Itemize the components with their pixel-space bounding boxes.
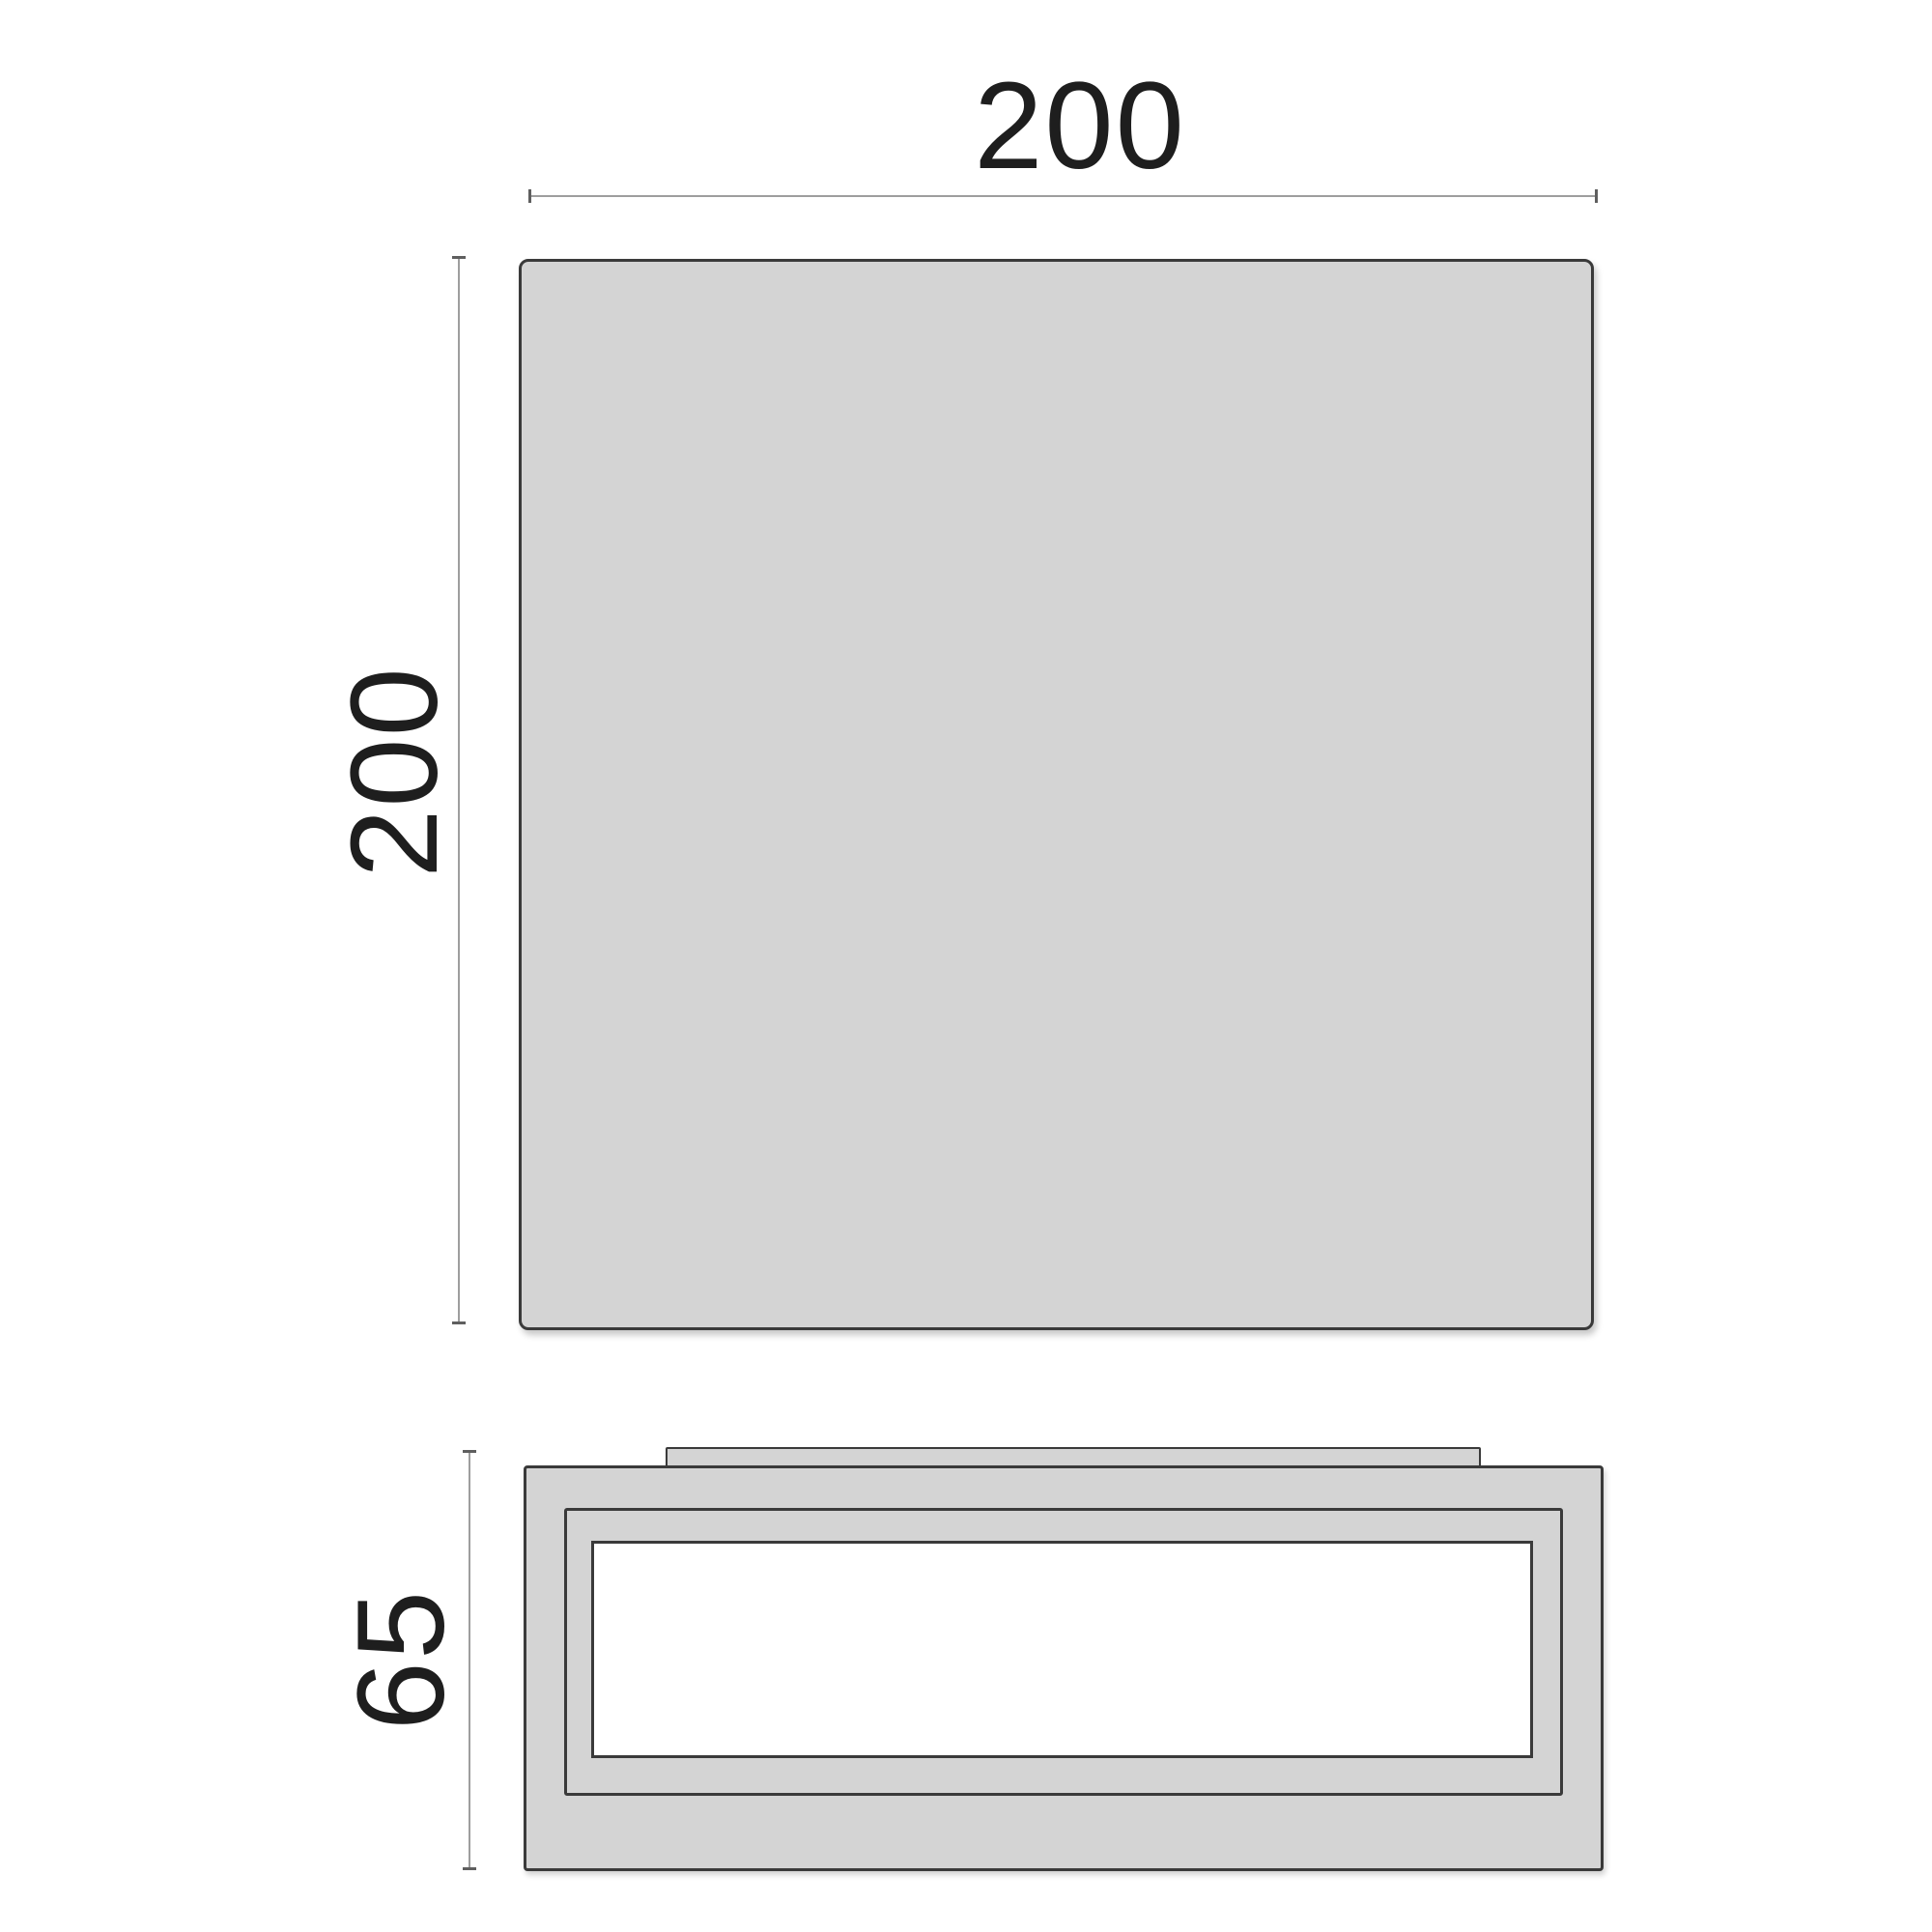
dimension-tick-top	[463, 1450, 476, 1453]
dimension-tick-right	[1595, 189, 1598, 203]
dimension-tick-left	[528, 189, 531, 203]
dimension-tick-bottom	[452, 1321, 466, 1324]
depth-dimension-label: 65	[328, 1505, 473, 1814]
depth-dimension-line	[469, 1451, 470, 1869]
dimension-tick-bottom	[463, 1867, 476, 1870]
dimension-tick-top	[452, 256, 466, 259]
top-view-square	[519, 259, 1594, 1330]
height-dimension-line	[458, 257, 460, 1323]
width-dimension-line	[529, 195, 1597, 197]
dimension-drawing: 200 200 65	[0, 0, 1932, 1932]
width-dimension-label: 200	[925, 53, 1235, 198]
height-dimension-label: 200	[322, 617, 467, 926]
side-view-diffuser-panel	[591, 1541, 1533, 1758]
